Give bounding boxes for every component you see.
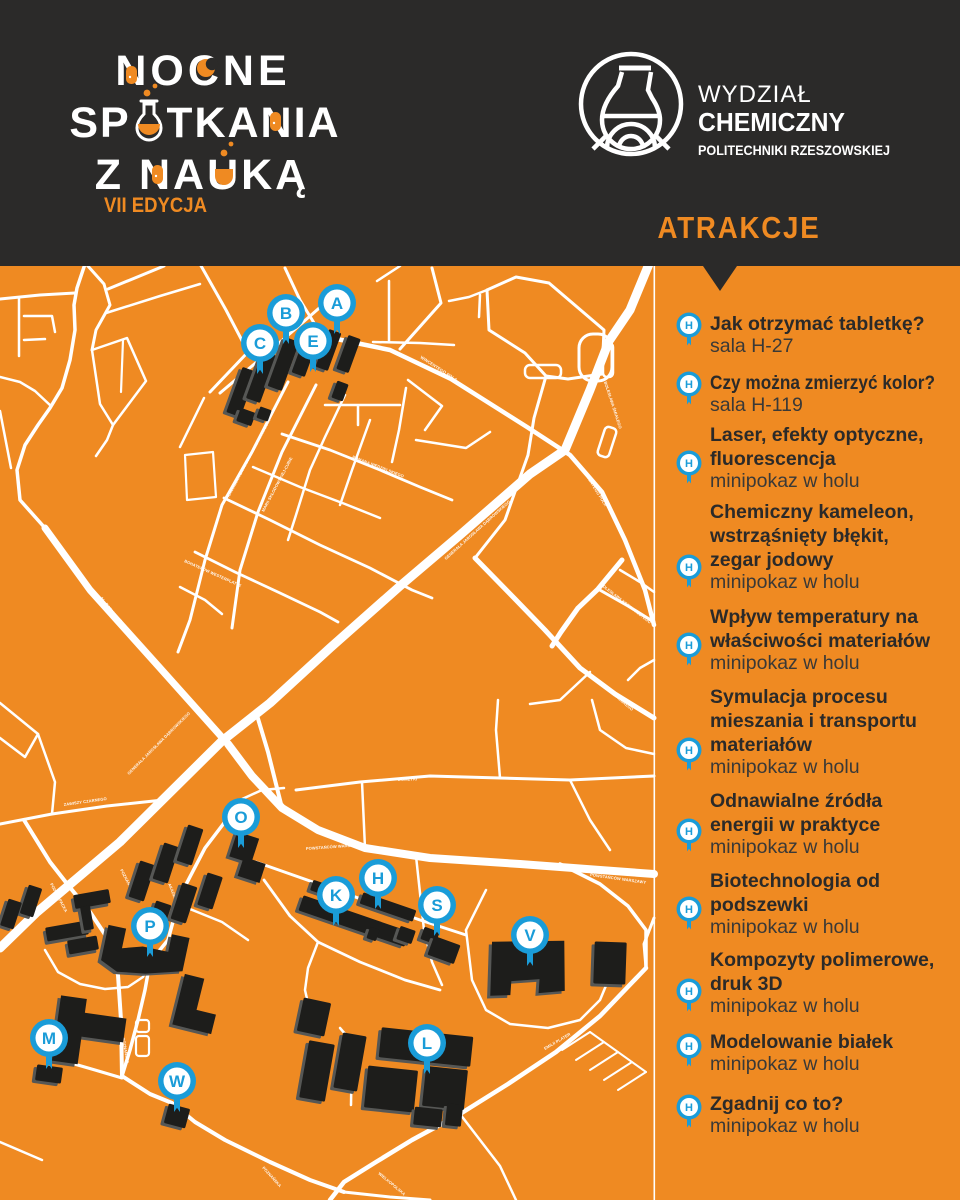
svg-text:Kompozyty polimerowe,: Kompozyty polimerowe, [710,949,934,971]
svg-text:S: S [431,896,442,915]
svg-text:sala H-27: sala H-27 [710,335,793,357]
svg-text:H: H [685,320,693,332]
svg-text:minipokaz w holu: minipokaz w holu [710,1115,860,1137]
svg-text:H: H [685,986,693,998]
svg-text:H: H [685,640,693,652]
svg-text:fluorescencja: fluorescencja [710,448,836,470]
svg-text:H: H [685,1041,693,1053]
svg-text:V: V [524,926,536,945]
svg-text:ATRAKCJE: ATRAKCJE [658,210,821,245]
svg-text:Laser, efekty optyczne,: Laser, efekty optyczne, [710,424,924,446]
svg-text:minipokaz w holu: minipokaz w holu [710,756,860,778]
svg-text:DOMEYKI: DOMEYKI [398,776,418,782]
svg-text:Wpływ temperatury na: Wpływ temperatury na [710,606,918,628]
svg-text:energii w praktyce: energii w praktyce [710,814,880,836]
svg-text:Zgadnij co to?: Zgadnij co to? [710,1093,843,1115]
svg-text:K: K [330,886,343,905]
svg-text:E: E [307,332,318,351]
svg-text:VII EDYCJA: VII EDYCJA [104,194,207,217]
svg-text:minipokaz w holu: minipokaz w holu [710,836,860,858]
svg-text:H: H [685,562,693,574]
svg-text:minipokaz w holu: minipokaz w holu [710,470,860,492]
svg-text:L: L [422,1034,432,1053]
svg-text:W: W [169,1072,186,1091]
svg-text:minipokaz w holu: minipokaz w holu [710,1053,860,1075]
svg-text:H: H [685,458,693,470]
svg-text:minipokaz w holu: minipokaz w holu [710,652,860,674]
svg-text:podszewki: podszewki [710,894,809,916]
svg-text:Z NAUKĄ: Z NAUKĄ [95,151,309,199]
svg-text:Odnawialne źródła: Odnawialne źródła [710,790,882,812]
svg-text:zegar jodowy: zegar jodowy [710,549,834,571]
svg-text:C: C [254,334,266,353]
svg-text:CHEMICZNY: CHEMICZNY [698,107,845,137]
svg-text:właściwości materiałów: właściwości materiałów [709,630,931,652]
svg-text:H: H [372,869,384,888]
svg-text:minipokaz w holu: minipokaz w holu [710,916,860,938]
svg-text:minipokaz w holu: minipokaz w holu [710,995,860,1017]
svg-text:A: A [331,294,343,313]
svg-text:SPOTKANIA: SPOTKANIA [69,99,340,147]
svg-text:materiałów: materiałów [710,734,813,756]
svg-text:P: P [144,917,155,936]
svg-text:H: H [685,904,693,916]
svg-text:Modelowanie białek: Modelowanie białek [710,1031,893,1053]
svg-text:wstrząśnięty błękit,: wstrząśnięty błękit, [709,525,889,547]
svg-text:Czy można zmierzyć kolor?: Czy można zmierzyć kolor? [710,372,935,394]
svg-text:M: M [42,1029,56,1048]
svg-text:WYDZIAŁ: WYDZIAŁ [698,81,812,108]
svg-text:H: H [685,826,693,838]
svg-text:sala H-119: sala H-119 [710,394,803,416]
svg-text:H: H [685,1102,693,1114]
svg-text:Symulacja procesu: Symulacja procesu [710,686,888,708]
svg-text:Biotechnologia od: Biotechnologia od [710,870,880,892]
svg-text:Chemiczny kameleon,: Chemiczny kameleon, [710,501,914,523]
svg-text:O: O [234,808,247,827]
svg-text:druk 3D: druk 3D [710,973,783,995]
svg-text:minipokaz w holu: minipokaz w holu [710,571,860,593]
svg-text:Jak otrzymać tabletkę?: Jak otrzymać tabletkę? [710,313,925,335]
svg-text:mieszania i transportu: mieszania i transportu [710,710,917,732]
svg-text:H: H [685,379,693,391]
svg-text:POLITECHNIKI RZESZOWSKIEJ: POLITECHNIKI RZESZOWSKIEJ [698,143,890,158]
svg-text:B: B [280,304,292,323]
svg-text:H: H [685,745,693,757]
